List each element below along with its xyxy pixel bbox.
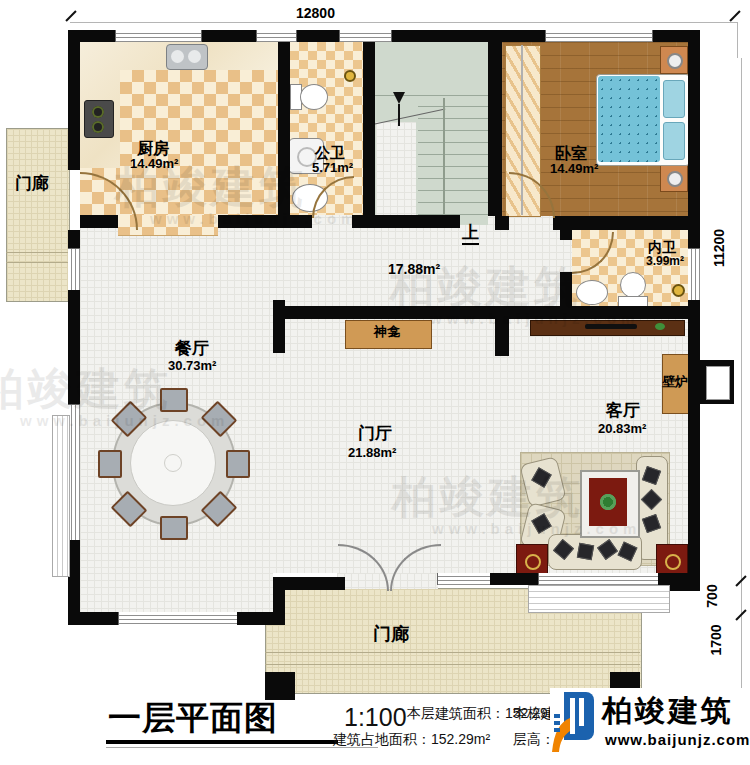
wall-segment	[363, 215, 460, 228]
dimension-tick	[729, 10, 740, 21]
stair-steps	[418, 95, 488, 217]
floor-drain	[672, 284, 685, 297]
porch-left-step-line	[6, 262, 68, 263]
porch-left-label: 门廊	[15, 175, 49, 194]
sink-basin	[171, 50, 184, 63]
public-bath-area: 5.71m²	[312, 161, 353, 175]
towel-hook	[344, 70, 356, 82]
company-website: www.baijunjz.com	[605, 732, 750, 749]
watermark-url: www.baijunjz.com	[20, 412, 229, 429]
tv-plant	[655, 323, 665, 330]
stair-rail	[443, 98, 445, 214]
chimney-flue	[706, 366, 730, 400]
wall-segment	[490, 573, 538, 585]
wall-segment	[363, 42, 375, 215]
mat-medallion	[665, 554, 681, 570]
wall-segment	[273, 577, 285, 625]
wall-segment	[488, 42, 502, 216]
bay-window-left	[52, 415, 70, 577]
dining-name: 餐厅	[175, 340, 209, 359]
stat-footprint-value: 152.29m²	[431, 731, 490, 747]
dimension-width: 12800	[296, 5, 335, 21]
fireplace-label: 壁炉	[662, 375, 688, 389]
wall-segment	[553, 216, 688, 230]
watermark: 柏竣建筑	[390, 258, 582, 317]
foyer-name: 门厅	[358, 425, 392, 444]
company-name: 柏竣建筑	[602, 694, 734, 727]
window	[115, 30, 202, 42]
wall-segment	[285, 577, 345, 590]
floor-plan-canvas: 12800 11200 700 1700 门廊 门廊 厨房 14.49m² 公卫…	[0, 0, 750, 765]
stair-arrow-head	[393, 92, 405, 104]
wall-segment	[495, 216, 509, 230]
window	[538, 573, 660, 585]
stair-landing-line	[375, 95, 488, 96]
dimension-line-right	[741, 58, 742, 696]
wall-segment	[273, 300, 285, 353]
wall-segment	[560, 230, 572, 240]
bedroom-name: 卧室	[555, 145, 587, 163]
chimney	[700, 360, 734, 404]
wall-segment	[390, 30, 545, 42]
window	[68, 248, 80, 292]
porch-step-line	[265, 652, 640, 653]
watermark-url: www.baijunjz.com	[430, 310, 639, 327]
dining-chair	[226, 450, 250, 478]
bed-pillow	[663, 80, 685, 118]
stat-footprint-label: 建筑占地面积：	[333, 731, 431, 747]
burner	[92, 121, 104, 133]
toilet-bowl	[620, 272, 646, 298]
window	[688, 248, 700, 302]
mat-medallion	[525, 554, 541, 570]
dimension-bay: 700	[704, 584, 720, 607]
living-area: 20.83m²	[598, 422, 646, 436]
porch-front-label: 门廊	[373, 625, 409, 645]
window-sidelight	[437, 573, 492, 585]
dimension-line-top	[70, 22, 737, 23]
under-stair-floor	[376, 122, 416, 225]
bed-pillow	[663, 122, 685, 160]
title-underline	[106, 740, 338, 744]
wall-segment	[688, 300, 700, 573]
company-logo: 柏竣建筑 www.baijunjz.com	[550, 688, 750, 760]
watermark: 柏竣建筑	[0, 360, 172, 419]
sofa-cushion	[577, 543, 594, 560]
wall-segment	[200, 30, 256, 42]
drawing-scale: 1:100	[344, 703, 407, 732]
stove	[84, 100, 114, 138]
kitchen-sink	[166, 44, 208, 70]
table-plant	[598, 492, 618, 512]
inner-bath-area: 3.99m²	[646, 255, 684, 268]
burner	[92, 106, 104, 118]
stat-floor-area-label: 本层建筑面积：	[407, 705, 505, 721]
dimension-height: 11200	[711, 229, 727, 267]
window	[339, 30, 392, 42]
kitchen-name: 厨房	[137, 140, 169, 158]
porch-left	[6, 128, 70, 302]
dining-area: 30.73m²	[168, 359, 216, 373]
dimension-tick	[65, 10, 76, 21]
page-title: 一层平面图	[108, 700, 278, 736]
window	[545, 30, 653, 42]
bed-mattress	[598, 76, 660, 162]
wall-segment	[688, 30, 700, 248]
dimension-porch: 1700	[708, 624, 724, 655]
watermark-url: www.baijunjz.com	[432, 520, 641, 537]
wall-segment	[295, 30, 339, 42]
dining-table-center	[164, 454, 182, 472]
porch-left-step-line	[6, 252, 68, 253]
window	[256, 30, 297, 42]
stair-up-label: 上	[462, 224, 479, 245]
lamp	[667, 171, 683, 187]
nightstand	[660, 164, 688, 192]
watermark: 柏竣建筑	[115, 158, 307, 217]
living-name: 客厅	[606, 402, 640, 421]
stair-arrow-line	[398, 104, 400, 126]
stat-footprint: 建筑占地面积：152.29m²	[333, 731, 490, 749]
watermark-url: www.baijunjz.com	[150, 210, 359, 227]
dining-chair	[160, 516, 188, 540]
toilet-bowl	[300, 84, 328, 110]
watermark: 柏竣建筑	[392, 468, 584, 527]
lamp	[667, 53, 683, 69]
stat-floor-height-label: 层高：	[513, 731, 555, 747]
company-logo-icon	[550, 690, 600, 754]
foyer-area: 21.88m²	[348, 446, 396, 460]
floor-dining-south	[80, 573, 273, 612]
dimension-line-corner	[737, 22, 738, 58]
window	[118, 612, 239, 625]
sink-basin	[188, 50, 201, 63]
wall-segment	[68, 30, 80, 170]
bay-window-south	[528, 585, 670, 613]
porch-step-line	[265, 664, 640, 665]
porch-pillar	[265, 672, 295, 700]
nightstand	[660, 46, 688, 74]
wall-segment	[68, 230, 80, 248]
wall-segment	[68, 612, 118, 625]
shrine-label: 神龛	[374, 325, 400, 339]
bedroom-area: 14.49m²	[550, 162, 598, 176]
dining-chair	[98, 450, 122, 478]
